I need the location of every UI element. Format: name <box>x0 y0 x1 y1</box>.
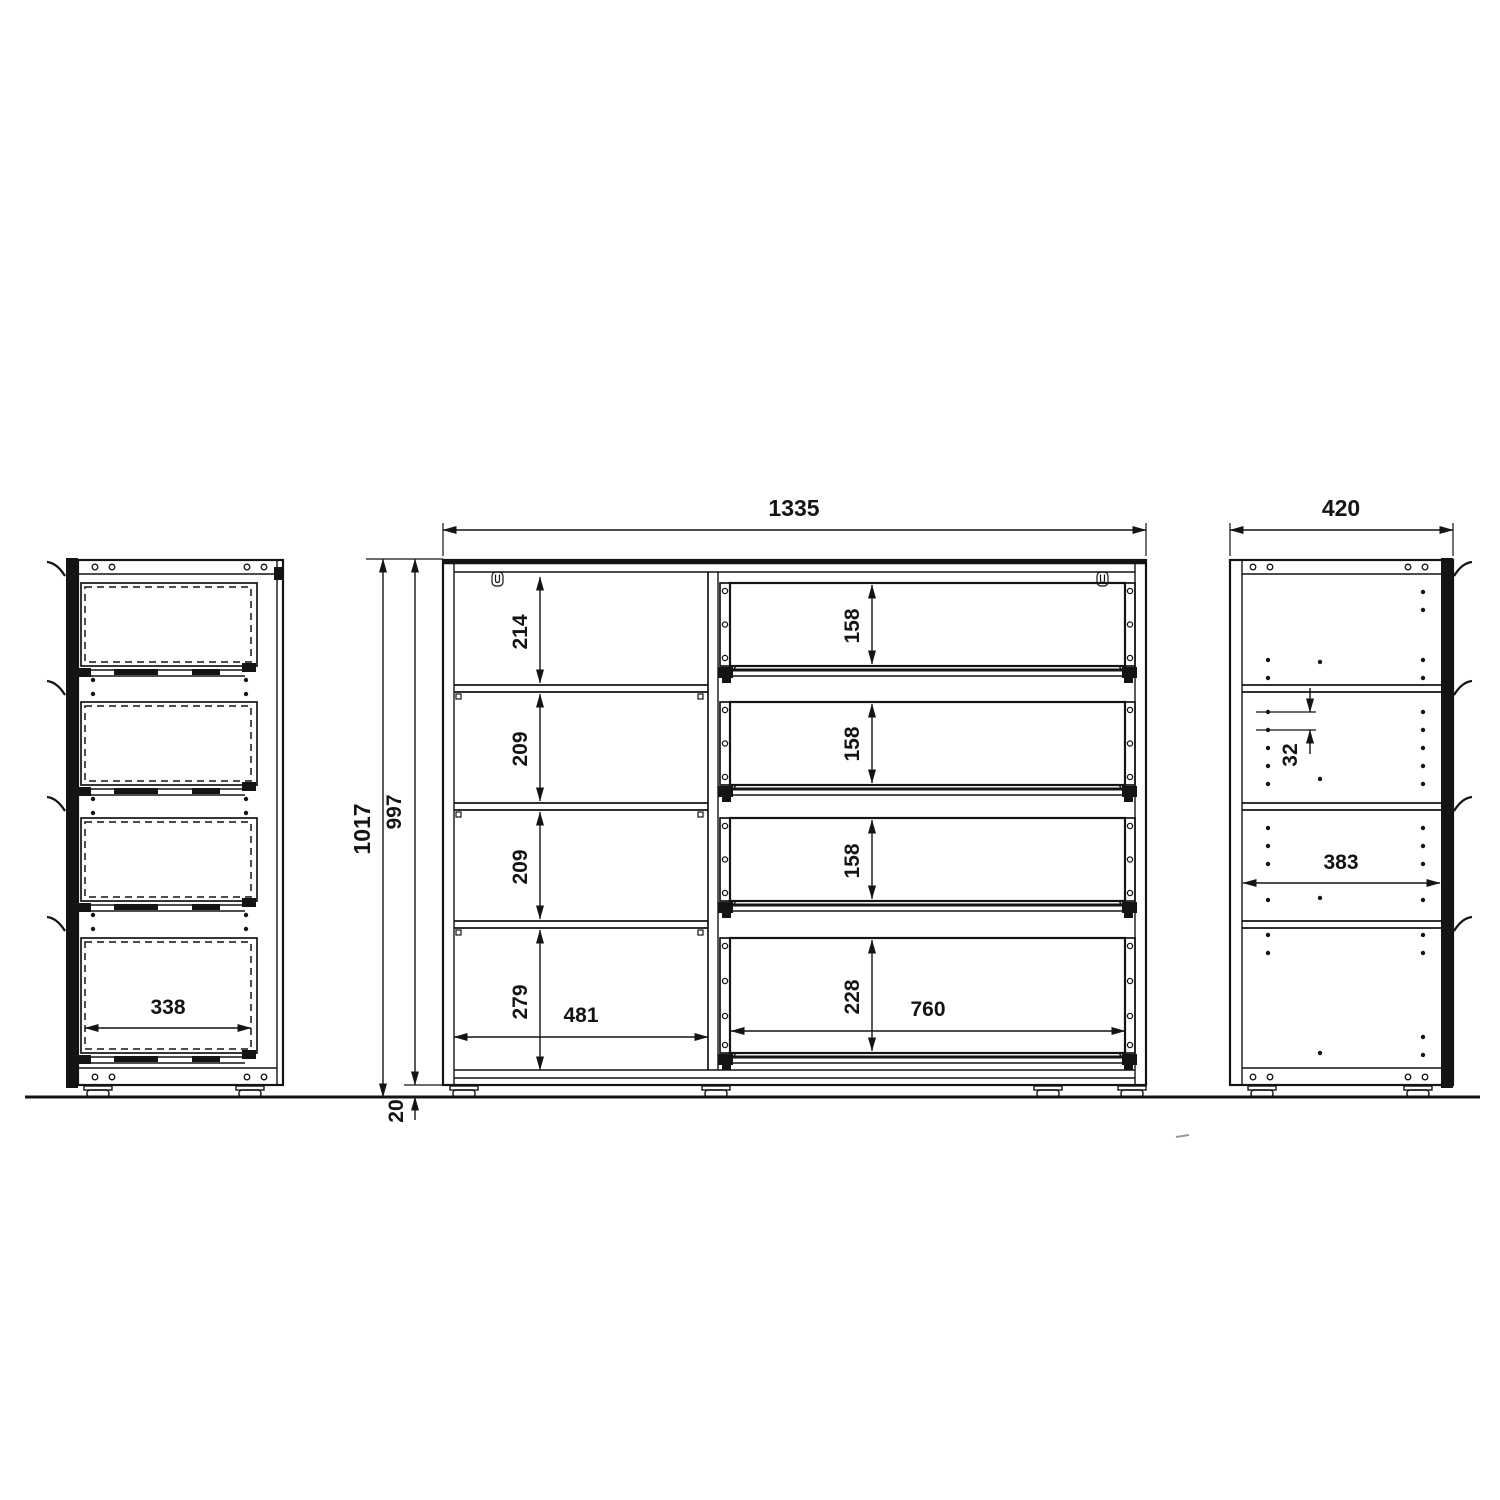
shelf-pin <box>456 812 461 817</box>
drawer-handle-icon <box>1454 917 1472 931</box>
drawer-handle-icon <box>1454 797 1472 811</box>
dim-label-214: 214 <box>509 614 532 649</box>
dim-label-32: 32 <box>1279 743 1302 766</box>
dim-label-997: 997 <box>383 794 406 829</box>
dim-label-279: 279 <box>509 984 532 1019</box>
shelf-pin <box>456 694 461 699</box>
dim-label-420: 420 <box>1322 495 1360 521</box>
system-holes <box>1266 590 1425 1057</box>
foot <box>1248 1086 1276 1097</box>
shelves <box>454 685 708 935</box>
dim-hole-pitch: 32 <box>1256 688 1316 767</box>
foot <box>84 1086 112 1097</box>
dim-label-158a: 158 <box>841 608 864 643</box>
dim-label-209b: 209 <box>509 849 532 884</box>
technical-drawing-page: 338 <box>0 0 1500 1500</box>
carcass-outline <box>443 560 1146 1085</box>
right-side-view: 420 <box>1230 495 1472 1097</box>
dim-drawer-inner-depth: 338 <box>85 996 251 1028</box>
dim-label-383: 383 <box>1323 851 1358 874</box>
drawer-1-section <box>79 583 257 677</box>
shelf-edges <box>1242 685 1441 928</box>
side-panel-holes <box>91 678 248 931</box>
drawer-1 <box>718 583 1137 683</box>
dim-label-481: 481 <box>563 1004 598 1027</box>
shelf-pin <box>698 694 703 699</box>
dim-label-1017: 1017 <box>349 803 375 854</box>
dim-label-1335: 1335 <box>768 495 819 521</box>
stray-mark <box>1176 1135 1189 1137</box>
drawer-handle-icon <box>47 917 65 931</box>
drawer-2-section <box>79 702 257 796</box>
front-panel-edge <box>1441 558 1453 1088</box>
drawer-handle-icon <box>47 681 65 695</box>
shelf-pin <box>698 812 703 817</box>
carcass-outline <box>1230 560 1453 1085</box>
dim-foot-height: 20 <box>385 1097 415 1123</box>
drawer-2 <box>718 702 1137 802</box>
dim-label-228: 228 <box>841 979 864 1014</box>
foot <box>1118 1086 1146 1097</box>
foot <box>1404 1086 1432 1097</box>
dim-label-158c: 158 <box>841 843 864 878</box>
drawer-handle-icon <box>1454 562 1472 576</box>
back-panel-corner <box>274 567 283 580</box>
furniture-dimension-drawing: 338 <box>0 0 1500 1500</box>
dim-label-760: 760 <box>910 998 945 1021</box>
drawer-handle-icon <box>1454 681 1472 695</box>
drawer-3 <box>718 818 1137 918</box>
drawer-handle-icon <box>47 562 65 576</box>
dim-label-20: 20 <box>385 1099 408 1122</box>
foot <box>702 1086 730 1097</box>
dim-carcass-height: 997 <box>383 559 443 1085</box>
cam-lock-icon <box>492 572 503 586</box>
foot <box>236 1086 264 1097</box>
shelf-pin <box>456 930 461 935</box>
dim-overall-width: 1335 <box>443 495 1146 556</box>
drawer-handle-icon <box>47 797 65 811</box>
front-view: 214 209 209 279 481 158 158 158 228 760 <box>443 560 1146 1097</box>
front-panel-edge <box>66 558 78 1088</box>
foot <box>1034 1086 1062 1097</box>
dim-inner-depth: 383 <box>1243 851 1440 883</box>
dim-label-338: 338 <box>150 996 185 1019</box>
foot <box>450 1086 478 1097</box>
dim-overall-depth: 420 <box>1230 495 1453 556</box>
dim-label-209: 209 <box>509 731 532 766</box>
dim-label-158b: 158 <box>841 726 864 761</box>
shelf-pin <box>698 930 703 935</box>
dim-compartments: 214 209 209 279 481 <box>454 577 708 1070</box>
left-side-section-view: 338 <box>47 558 283 1097</box>
drawer-3-section <box>79 818 257 912</box>
